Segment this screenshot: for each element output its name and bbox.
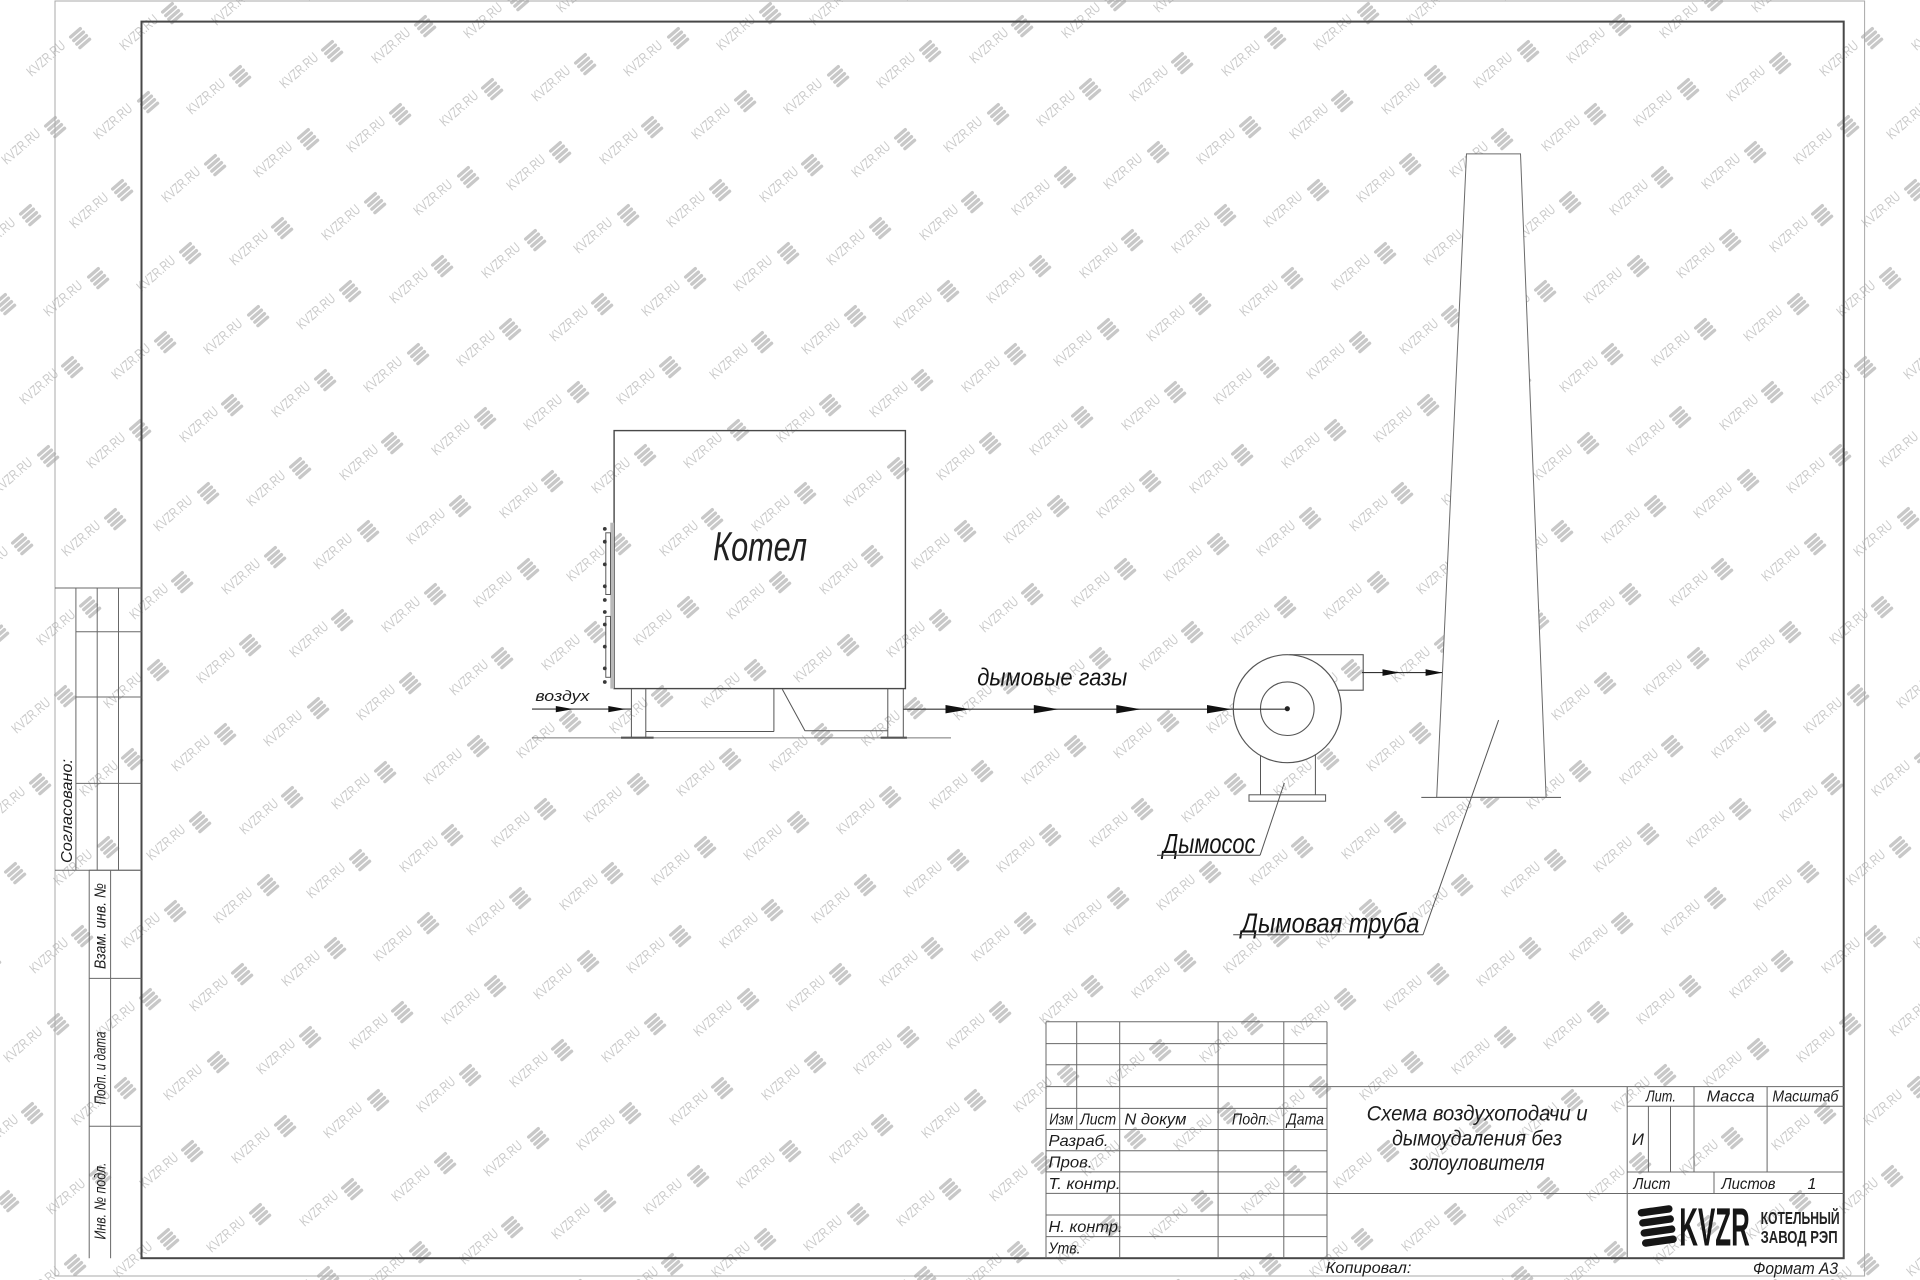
svg-text:И: И [1632, 1130, 1645, 1149]
svg-text:Пров.: Пров. [1049, 1154, 1093, 1171]
svg-text:N докум: N докум [1124, 1112, 1186, 1129]
svg-text:Изм: Изм [1049, 1112, 1073, 1129]
svg-text:1: 1 [1808, 1176, 1817, 1193]
svg-text:Дымосос: Дымосос [1161, 828, 1256, 859]
svg-text:Разраб.: Разраб. [1049, 1133, 1109, 1150]
svg-text:KVZR: KVZR [1679, 1197, 1750, 1257]
svg-text:Взам. инв. №: Взам. инв. № [92, 883, 109, 969]
svg-text:Копировал:: Копировал: [1326, 1260, 1412, 1277]
svg-text:Масса: Масса [1707, 1089, 1755, 1106]
svg-text:Инв. № подл.: Инв. № подл. [92, 1163, 109, 1240]
svg-text:Дата: Дата [1285, 1112, 1324, 1129]
svg-text:Формат А3: Формат А3 [1753, 1260, 1839, 1278]
svg-text:Н. контр.: Н. контр. [1049, 1219, 1123, 1236]
svg-text:Схема воздухоподачи и: Схема воздухоподачи и [1367, 1103, 1588, 1126]
svg-text:дымоудаления без: дымоудаления без [1392, 1127, 1562, 1150]
svg-text:Котел: Котел [713, 523, 807, 569]
svg-text:Лист: Лист [1079, 1112, 1116, 1129]
svg-text:Масштаб: Масштаб [1772, 1089, 1839, 1106]
svg-text:Утв.: Утв. [1048, 1240, 1081, 1257]
svg-text:Т. контр.: Т. контр. [1049, 1176, 1121, 1193]
svg-text:Лит.: Лит. [1645, 1089, 1676, 1106]
svg-text:Листов: Листов [1721, 1176, 1776, 1193]
svg-text:КОТЕЛЬНЫЙ: КОТЕЛЬНЫЙ [1761, 1207, 1840, 1228]
svg-text:Дымовая труба: Дымовая труба [1239, 908, 1420, 939]
svg-text:золоуловителя: золоуловителя [1409, 1152, 1545, 1175]
svg-text:ЗАВОД РЭП: ЗАВОД РЭП [1761, 1227, 1838, 1247]
svg-text:дымовые газы: дымовые газы [977, 665, 1127, 692]
svg-text:Подп.: Подп. [1232, 1112, 1270, 1129]
svg-text:Согласовано:: Согласовано: [59, 759, 76, 863]
svg-text:воздух: воздух [535, 689, 590, 705]
svg-text:Лист: Лист [1633, 1176, 1671, 1193]
svg-text:Подп. и дата: Подп. и дата [92, 1031, 109, 1104]
